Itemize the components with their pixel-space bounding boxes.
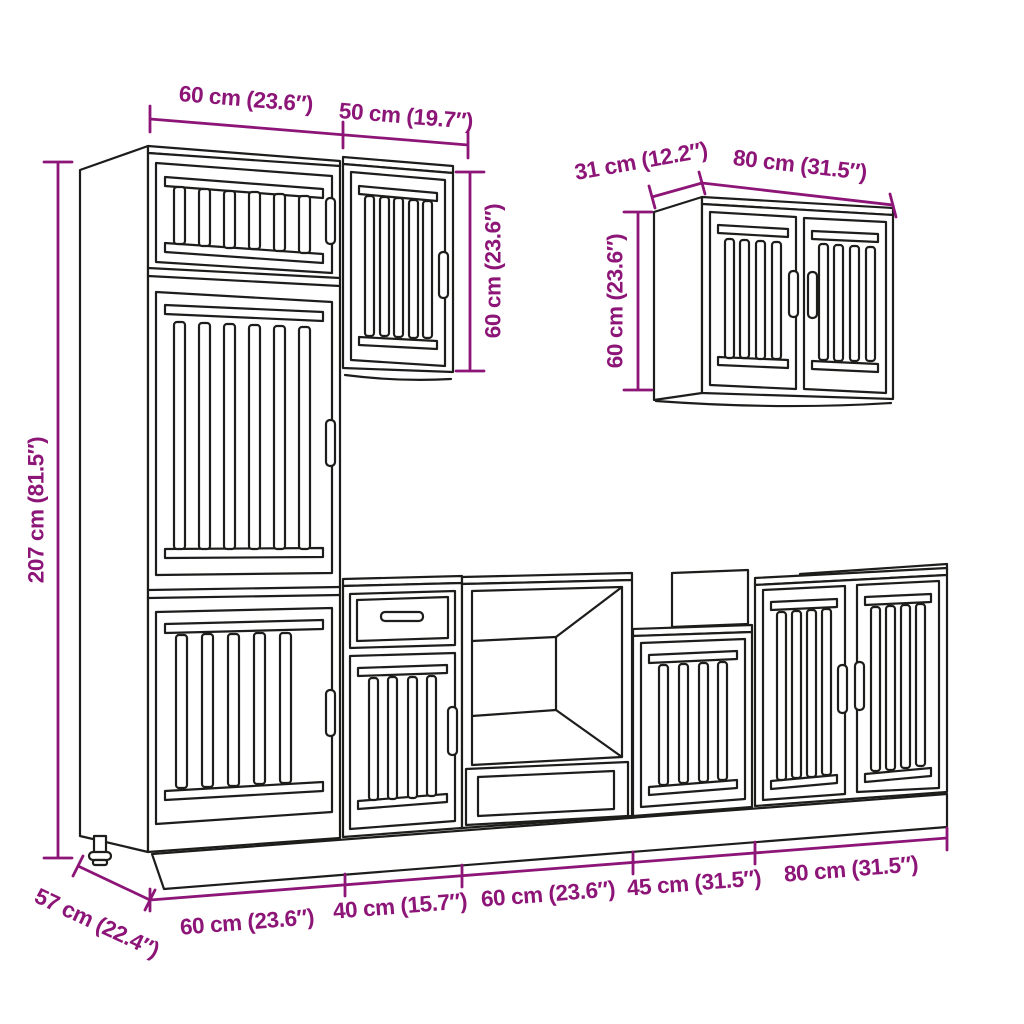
dim-label-tall-height: 207 cm (81.5″): [24, 437, 49, 584]
wall80-side-panel: [654, 197, 702, 400]
door-handle: [838, 665, 847, 713]
tall-cabinet-side-panel: [80, 146, 148, 852]
door-handle: [448, 707, 457, 755]
wall-cabinet-80: [654, 197, 893, 406]
oven-opening: [472, 587, 622, 765]
door-handle: [326, 198, 335, 244]
tall-bottom-door: [156, 608, 335, 824]
oven-cabinet-60: [462, 573, 632, 828]
dim-label-wall50-height: 60 cm (23.6″): [481, 204, 506, 338]
door-handle: [439, 252, 448, 298]
base40-door: [350, 653, 457, 829]
drawer-handle: [381, 612, 423, 621]
tall-middle-door: [156, 292, 335, 575]
tall-cabinet: [80, 146, 340, 865]
door-handle: [855, 662, 864, 710]
base80-right-door: [855, 581, 939, 792]
base80-left-door: [763, 586, 847, 800]
cabinet-dimension-diagram: 60 cm (23.6″) 50 cm (19.7″) 60 cm (23.6″…: [0, 0, 1024, 1024]
wall50-door: [351, 172, 448, 366]
door-handle: [326, 420, 335, 466]
door-handle: [808, 272, 817, 318]
dim-label-wall80-height: 60 cm (23.6″): [603, 234, 628, 368]
base40-drawer: [350, 591, 455, 648]
base45-door: [641, 639, 745, 807]
base-cabinet-40: [343, 576, 462, 837]
base45-back-panel: [672, 570, 748, 627]
door-handle: [789, 271, 798, 317]
wall-cabinet-50: [343, 157, 453, 380]
oven-bottom-panel: [466, 762, 628, 825]
diagram-canvas: 60 cm (23.6″) 50 cm (19.7″) 60 cm (23.6″…: [0, 0, 1024, 1024]
base-cabinet-80: [755, 564, 947, 806]
tall-top-door: [156, 163, 335, 273]
wall80-right-door: [804, 218, 886, 393]
door-handle: [326, 690, 335, 736]
door-slats: [365, 196, 432, 338]
wall80-left-door: [710, 212, 798, 389]
